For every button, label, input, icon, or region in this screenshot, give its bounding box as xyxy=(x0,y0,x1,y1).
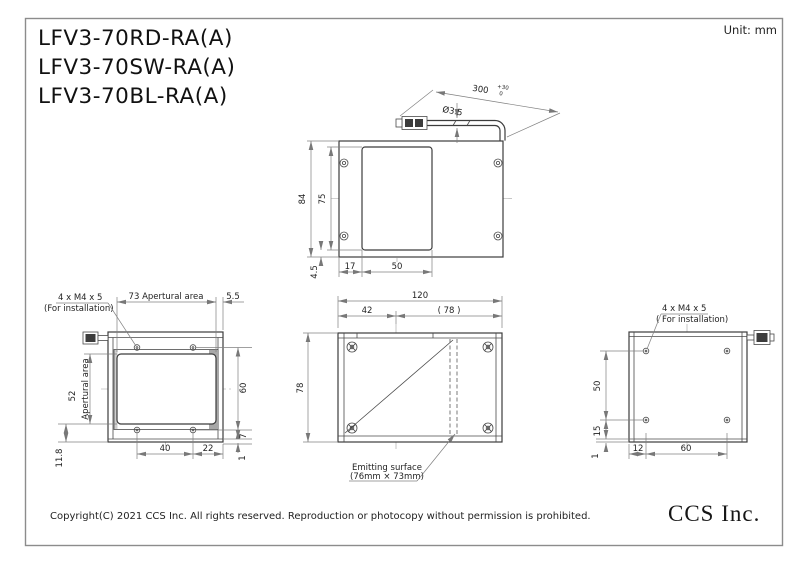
dim-120: 120 xyxy=(412,291,428,301)
dim-4-5: 4.5 xyxy=(310,265,320,279)
dim-17: 17 xyxy=(345,262,356,272)
dim-78: 78 xyxy=(296,383,306,394)
model-name-1: LFV3-70RD-RA(A) xyxy=(38,26,233,51)
copyright-text: Copyright(C) 2021 CCS Inc. All rights re… xyxy=(50,511,591,522)
screw-spec-note: ( For installation) xyxy=(656,315,728,325)
dim-1: 1 xyxy=(591,453,601,458)
dim-1: 1 xyxy=(238,455,248,460)
dim-84: 84 xyxy=(298,194,308,205)
side-view-body xyxy=(338,333,502,442)
screw-spec-label: 4 x M4 x 5 xyxy=(662,304,706,314)
emitting-surface-size: (76mm × 73mm) xyxy=(350,472,424,482)
aperture-area-label: Apertural area xyxy=(81,358,91,419)
dim-60: 60 xyxy=(239,383,249,394)
screw-spec-label: 4 x M4 x 5 xyxy=(58,293,102,303)
dim-15: 15 xyxy=(593,426,603,437)
model-name-2: LFV3-70SW-RA(A) xyxy=(38,55,235,80)
aperture-window xyxy=(117,354,216,424)
dim-22: 22 xyxy=(203,444,214,454)
unit-label: Unit: mm xyxy=(724,23,777,37)
dim-78-reference: ( 78 ) xyxy=(438,306,461,316)
technical-drawing: LFV3-70RD-RA(A) LFV3-70SW-RA(A) LFV3-70B… xyxy=(0,0,800,566)
dim-60: 60 xyxy=(681,444,692,454)
dim-50: 50 xyxy=(593,381,603,392)
dim-52: 52 xyxy=(68,391,78,402)
dim-11-8: 11.8 xyxy=(55,449,65,468)
dim-40: 40 xyxy=(160,444,171,454)
dim-5-5: 5.5 xyxy=(226,292,240,302)
dim-75: 75 xyxy=(318,194,328,205)
dim-42: 42 xyxy=(362,306,373,316)
drawing-sheet: LFV3-70RD-RA(A) LFV3-70SW-RA(A) LFV3-70B… xyxy=(0,0,800,566)
dim-73-aperture: 73 Apertural area xyxy=(129,292,204,302)
model-name-3: LFV3-70BL-RA(A) xyxy=(38,84,228,109)
dim-7: 7 xyxy=(239,433,249,438)
dim-50: 50 xyxy=(392,262,403,272)
ccs-logo: CCS Inc. xyxy=(668,501,760,526)
dim-12: 12 xyxy=(633,444,644,454)
title-block: LFV3-70RD-RA(A) LFV3-70SW-RA(A) LFV3-70B… xyxy=(38,26,235,109)
top-view-window xyxy=(362,147,432,250)
screw-spec-note: (For installation) xyxy=(44,304,114,314)
